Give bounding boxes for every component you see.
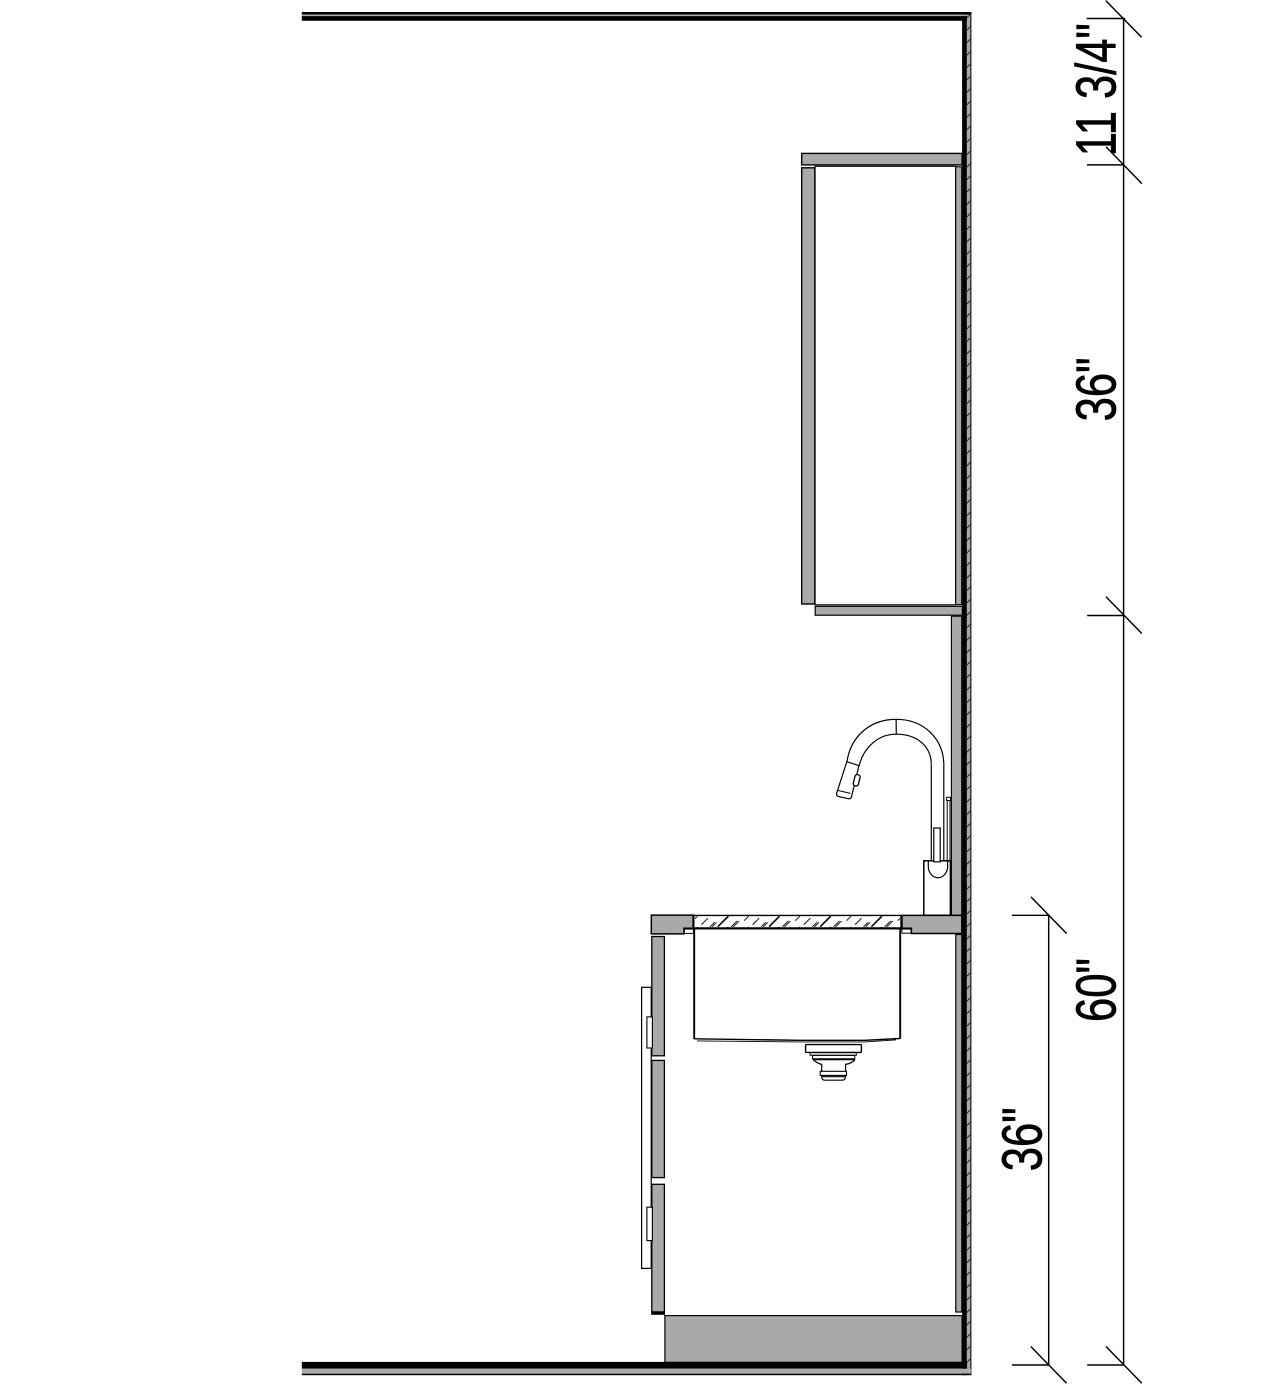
svg-text:36": 36" bbox=[991, 1107, 1055, 1171]
svg-text:36": 36" bbox=[1065, 357, 1129, 421]
svg-text:11 3/4": 11 3/4" bbox=[1065, 23, 1129, 156]
svg-text:60": 60" bbox=[1065, 958, 1129, 1022]
